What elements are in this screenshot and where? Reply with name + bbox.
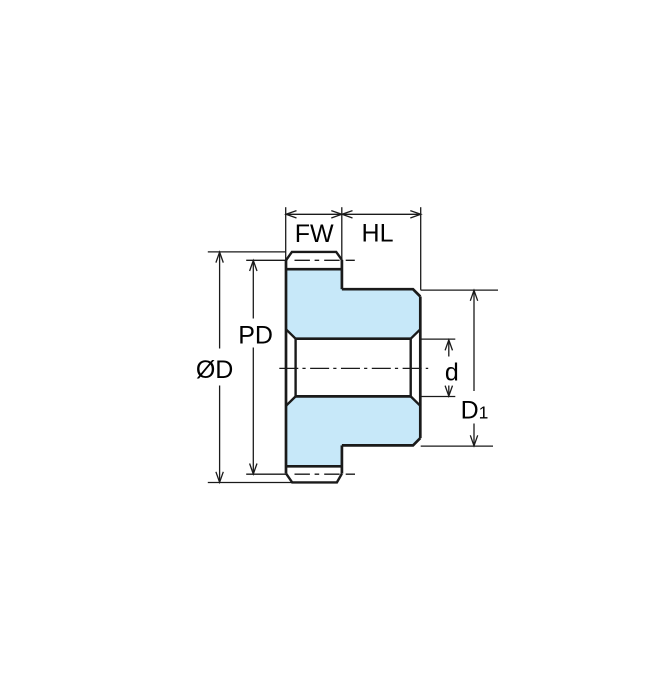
svg-text:FW: FW [295, 220, 334, 248]
svg-text:ØD: ØD [196, 356, 234, 384]
svg-text:d: d [445, 359, 459, 387]
svg-text:PD: PD [238, 322, 273, 350]
svg-text:HL: HL [362, 219, 394, 247]
